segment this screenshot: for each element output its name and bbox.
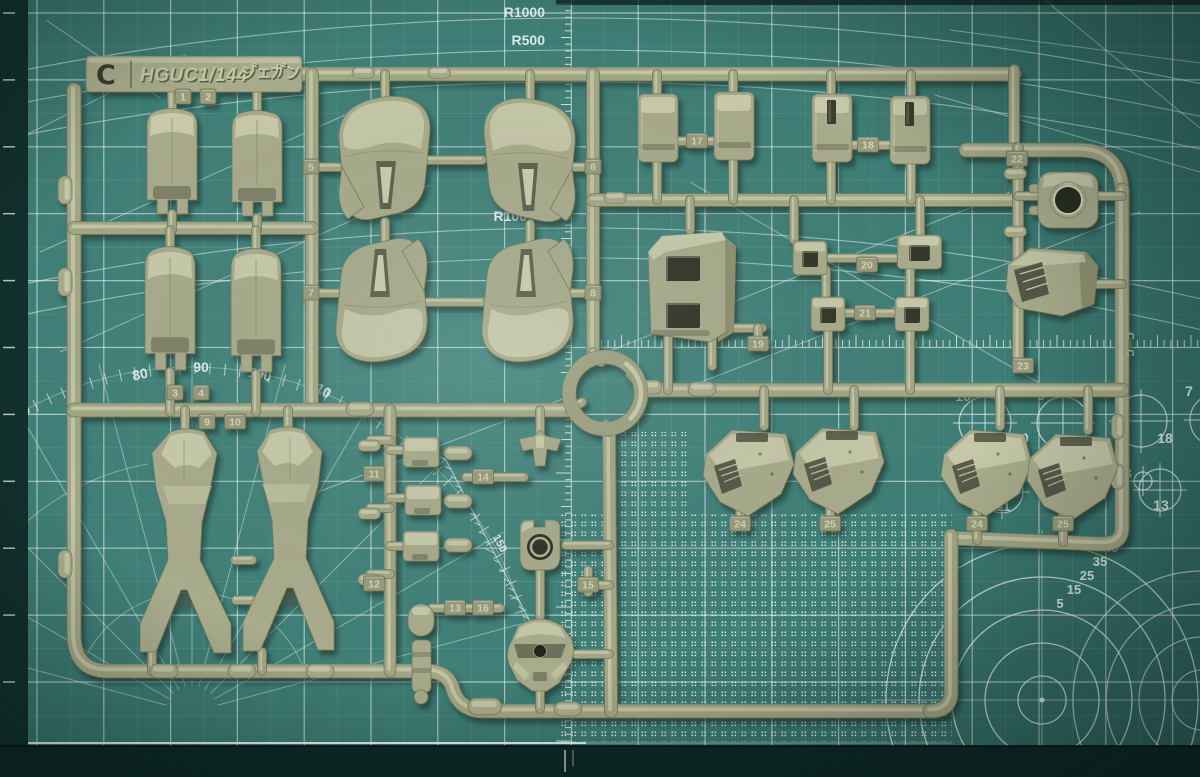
mat-label: R500: [512, 32, 546, 48]
part-tag: 24: [730, 516, 751, 531]
part-tag-number: 7: [308, 288, 314, 300]
part-box-17b: [714, 92, 754, 160]
part-tag-number: 23: [1017, 361, 1029, 373]
part-cube-21a: [811, 297, 845, 331]
part-tag: 1: [175, 89, 191, 104]
part-box-18b: [890, 96, 930, 164]
part-tag-number: 19: [752, 339, 764, 351]
part-tag-number: 14: [477, 472, 489, 484]
part-plate-11b: [405, 485, 441, 515]
part-tag: 6: [585, 159, 601, 174]
nub-pill: [358, 440, 380, 451]
mat-label: R1000: [504, 4, 545, 20]
part-tag-number: 10: [229, 417, 241, 429]
mat-label: 15: [1067, 582, 1081, 597]
part-tag-number: 1: [180, 92, 186, 104]
part-plate-11a: [403, 437, 439, 467]
mat-bottom-border: [0, 746, 1200, 777]
molded-c-mark: C: [1124, 332, 1135, 339]
part-tag: 8: [585, 285, 601, 300]
part-tag-number: 4: [198, 388, 204, 400]
part-tag: 19: [748, 336, 769, 351]
nub-pill: [688, 382, 716, 396]
part-calf-3: [145, 247, 195, 370]
part-tag-number: 8: [590, 288, 596, 300]
part-tag: 9: [199, 414, 215, 429]
part-tag: 4: [193, 385, 209, 400]
nub-pill: [554, 702, 582, 716]
part-tag: 13: [445, 600, 466, 615]
nub-pill: [604, 192, 626, 203]
part-shoulder-8: [482, 238, 573, 361]
part-tag-number: 25: [824, 519, 836, 531]
part-tag: 7: [303, 285, 319, 300]
nub-pill: [306, 664, 334, 678]
mat-label: 5: [1056, 596, 1063, 611]
nub-pill: [58, 176, 72, 204]
nub-pill: [444, 446, 472, 460]
mat-label: 18: [1157, 430, 1173, 446]
part-tag-number: 11: [368, 469, 379, 481]
part-tag: 25: [1053, 516, 1074, 531]
part-tag: 15: [578, 577, 599, 592]
nub-pill: [1004, 168, 1026, 179]
part-tag: 11: [364, 466, 385, 481]
part-tag-number: 24: [971, 519, 983, 531]
part-thruster-22: [1029, 172, 1098, 228]
part-tag-number: 9: [204, 417, 210, 429]
part-tag-number: 3: [172, 388, 178, 400]
part-tag: 17: [687, 133, 708, 148]
nub-pill: [228, 664, 256, 678]
part-tag: 2: [200, 89, 216, 104]
nub-pill: [58, 550, 72, 578]
sprue-label-plate: C HGUC1/144 HGUC1/144: [86, 56, 302, 92]
nub-pill: [444, 538, 472, 552]
part-box-17a: [638, 94, 678, 162]
part-tag: 22: [1007, 151, 1028, 166]
part-tag: 3: [167, 385, 183, 400]
part-collar-15: [520, 520, 560, 570]
part-tag: 12: [364, 576, 385, 591]
nub-pill: [150, 664, 178, 678]
part-tag-number: 12: [368, 579, 380, 591]
scene-svg: R1000R500R300R10060809010011010987201831…: [0, 0, 1200, 777]
part-tag-number: 20: [861, 260, 873, 272]
mat-top-border: [556, 0, 1200, 5]
part-tag-number: 2: [205, 92, 211, 104]
part-tag-number: 6: [590, 162, 596, 174]
nub-pill: [468, 698, 502, 715]
part-calf-2: [232, 111, 282, 217]
molded-c-mark: C: [1124, 349, 1135, 356]
part-tag-number: 25: [1057, 519, 1069, 531]
part-tag-number: 18: [862, 140, 874, 152]
dotted-panel: [608, 432, 688, 514]
protractor-tick: [210, 362, 211, 374]
photo-model-kit-sprue-on-cutting-mat: R1000R500R300R10060809010011010987201831…: [0, 0, 1200, 777]
part-tag-number: 5: [308, 162, 314, 174]
nub-pill: [444, 494, 472, 508]
part-tag: 10: [225, 414, 246, 429]
part-tag-number: 13: [449, 603, 461, 615]
mat-label: 7: [1185, 383, 1193, 399]
gate-title-latin: HGUC1/144: [140, 65, 248, 86]
rail-highlight: [608, 427, 610, 709]
part-cube-21b: [895, 297, 929, 331]
part-tag-number: 16: [477, 603, 489, 615]
part-tag: 5: [303, 159, 319, 174]
part-tag-number: 24: [734, 519, 746, 531]
mat-label: 90: [193, 359, 209, 375]
nub-pill: [428, 67, 450, 78]
part-bracket-23: [1006, 248, 1098, 316]
nub-pill: [346, 402, 374, 416]
nub-pill: [1004, 226, 1026, 237]
part-tag-number: 15: [582, 580, 594, 592]
part-tag: 18: [858, 137, 879, 152]
part-plate-12: [403, 531, 439, 561]
part-tag: 16: [473, 600, 494, 615]
mat-label: 35: [1093, 554, 1107, 569]
gate-letter: C: [96, 60, 116, 91]
part-tag-number: 21: [859, 308, 871, 320]
part-shoulder-7: [336, 238, 427, 361]
part-tag: 20: [857, 257, 878, 272]
part-shoulder-5: [339, 96, 430, 219]
part-tag: 23: [1013, 358, 1034, 373]
part-tag: 25: [820, 516, 841, 531]
part-tag: 14: [473, 469, 494, 484]
part-tag: 24: [967, 516, 988, 531]
part-calf-4: [231, 249, 281, 372]
part-calf-1: [147, 109, 197, 215]
part-tag: 21: [855, 305, 876, 320]
part-backpack-19: [648, 232, 736, 342]
part-tag-number: 17: [691, 136, 703, 148]
part-cube-20b: [897, 235, 941, 269]
nub-pill: [1111, 414, 1124, 439]
nub-pill: [58, 268, 72, 296]
part-tag-number: 22: [1011, 154, 1023, 166]
part-box-18a: [812, 94, 852, 162]
part-shoulder-6: [484, 98, 575, 221]
mat-left-border: [0, 0, 28, 777]
mat-label: 25: [1080, 568, 1094, 583]
nub-pill: [352, 67, 374, 78]
nub-pill: [358, 508, 380, 519]
mat-label: 13: [1153, 497, 1169, 513]
part-cube-20a: [793, 241, 827, 275]
